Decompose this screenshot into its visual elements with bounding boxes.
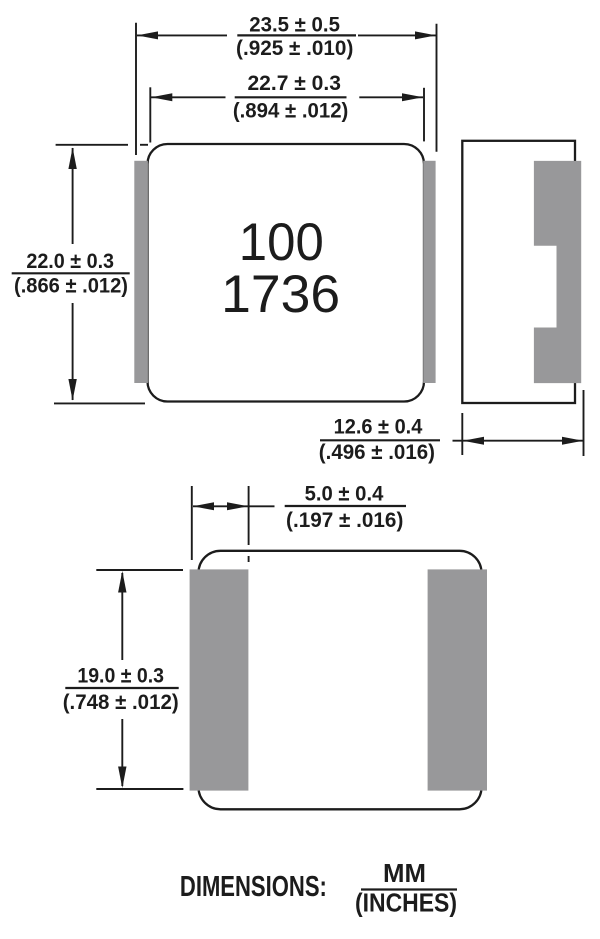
svg-text:100: 100	[239, 213, 324, 272]
svg-text:MM: MM	[383, 858, 426, 888]
svg-text:(.197 ± .016): (.197 ± .016)	[286, 508, 403, 532]
svg-text:(.925 ± .010): (.925 ± .010)	[236, 36, 353, 60]
svg-text:(.866 ± .012): (.866 ± .012)	[14, 274, 128, 298]
svg-text:19.0 ± 0.3: 19.0 ± 0.3	[77, 664, 164, 688]
svg-text:(.748 ± .012): (.748 ± .012)	[63, 690, 179, 714]
svg-text:22.7 ± 0.3: 22.7 ± 0.3	[247, 71, 341, 95]
svg-text:5.0 ± 0.4: 5.0 ± 0.4	[305, 481, 384, 505]
svg-text:DIMENSIONS:: DIMENSIONS:	[180, 871, 327, 903]
svg-text:(.894 ± .012): (.894 ± .012)	[233, 99, 349, 123]
svg-text:23.5 ± 0.5: 23.5 ± 0.5	[249, 13, 340, 37]
svg-text:(.496 ± .016): (.496 ± .016)	[319, 440, 435, 464]
svg-text:1736: 1736	[221, 265, 340, 324]
svg-text:12.6 ± 0.4: 12.6 ± 0.4	[334, 415, 423, 439]
svg-text:(INCHES): (INCHES)	[355, 890, 457, 918]
svg-text:22.0 ± 0.3: 22.0 ± 0.3	[26, 249, 114, 273]
